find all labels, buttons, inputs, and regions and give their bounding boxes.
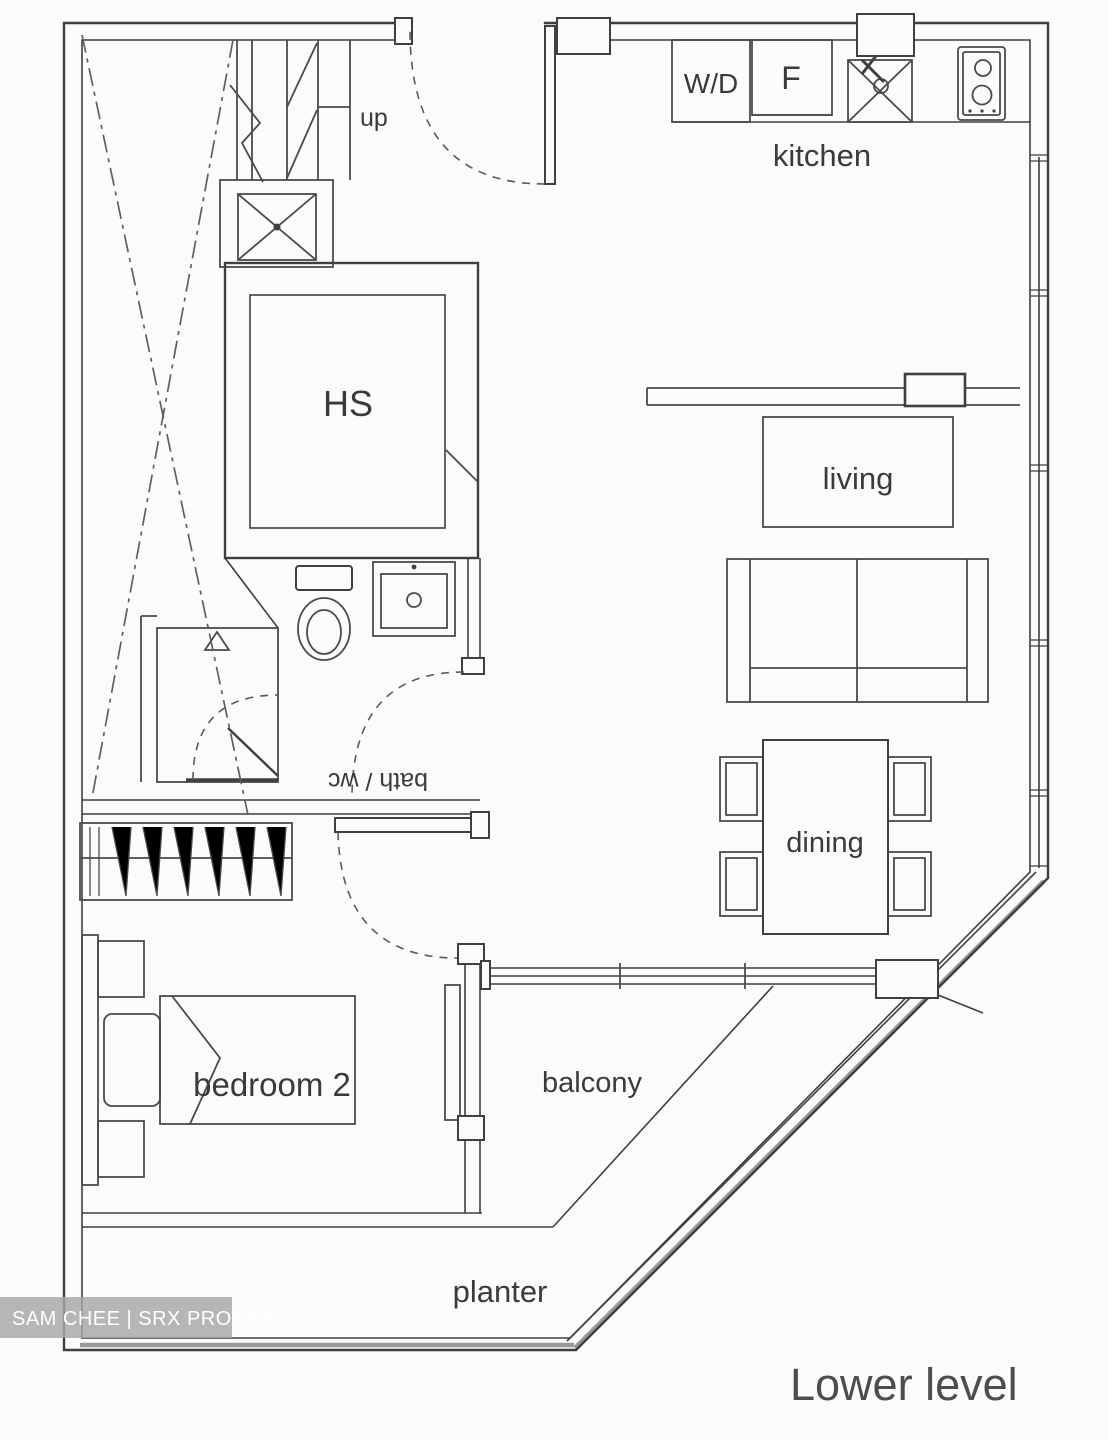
bedroom2-label: bedroom 2 xyxy=(193,1066,351,1103)
bedside-table xyxy=(98,1121,144,1177)
void-line xyxy=(92,40,233,798)
hob-knob xyxy=(980,109,983,112)
watermark-badge: SAM CHEE | SRX PROPERTY xyxy=(0,1297,301,1338)
sliding-door-jamb xyxy=(481,961,490,989)
hatch-line xyxy=(90,827,99,896)
exterior-walls xyxy=(64,14,1048,1350)
dining-chair xyxy=(720,852,763,916)
inner-wall-line xyxy=(82,40,1030,1338)
dining-chair xyxy=(720,757,763,821)
wall-service-box xyxy=(557,18,610,54)
basin-bowl xyxy=(381,574,447,628)
household-shelter: HS xyxy=(225,263,478,558)
sofa-cushion-lines xyxy=(750,559,967,702)
plan-title: Lower level xyxy=(790,1359,1018,1410)
bedroom-door-leaf xyxy=(335,818,475,832)
watermark-text: SAM CHEE | SRX PROPERTY xyxy=(12,1308,301,1330)
wall-block xyxy=(458,1116,484,1140)
dining-label: dining xyxy=(786,827,863,859)
floor-plan-page: up HS xyxy=(0,0,1108,1440)
bedroom-door xyxy=(335,812,489,958)
tv-unit-box xyxy=(905,374,965,406)
outer-wall-line xyxy=(64,23,1048,1350)
blanket-fold xyxy=(172,996,220,1124)
stairs-up-label: up xyxy=(360,104,388,132)
bedroom-door-arc xyxy=(338,832,466,958)
entrance-door-swing-arc xyxy=(410,30,545,184)
shower-stall xyxy=(141,616,278,782)
entrance-door-leaf xyxy=(545,26,555,184)
planter-label: planter xyxy=(453,1274,548,1309)
bedroom-right-wall xyxy=(465,950,480,1213)
kitchen: W/D F kitchen xyxy=(672,40,1030,173)
vanity-counter xyxy=(373,562,455,636)
planter: planter xyxy=(453,1274,548,1309)
bed-outline xyxy=(160,996,355,1124)
toilet-icon xyxy=(296,566,352,660)
chair-seat xyxy=(726,858,757,910)
shower-door-leaf xyxy=(228,728,278,776)
void-lines xyxy=(82,35,248,815)
hob-icon xyxy=(958,47,1005,120)
dining-chair xyxy=(888,852,931,916)
bedroom-2: bedroom 2 xyxy=(80,812,489,1227)
shower-door-arc xyxy=(193,695,278,780)
dining-chair xyxy=(888,757,931,821)
chair-seat xyxy=(726,763,757,815)
hatch-line xyxy=(236,827,255,896)
shelter-label: HS xyxy=(323,383,373,424)
hatch-line xyxy=(112,827,131,896)
balcony-label: balcony xyxy=(542,1067,642,1099)
bath-label: bath / wc xyxy=(328,767,428,795)
sofa-icon xyxy=(727,559,988,702)
shower-triangle-icon xyxy=(205,632,229,650)
bedroom-bottom-wall xyxy=(82,1213,482,1227)
living-room: living xyxy=(647,374,1020,702)
fridge-label: F xyxy=(781,60,801,96)
toilet-bowl xyxy=(298,598,350,660)
bed-headboard xyxy=(82,935,98,1185)
hob-inner xyxy=(963,52,1000,115)
stair-treads xyxy=(237,40,350,180)
wardrobe-hatch xyxy=(90,827,286,896)
kitchen-label: kitchen xyxy=(773,138,871,173)
hatch-line xyxy=(143,827,162,896)
hatch-line xyxy=(205,827,224,896)
living-label: living xyxy=(823,461,894,496)
lift-center-dot xyxy=(274,224,281,231)
washer-dryer-label: W/D xyxy=(684,68,738,99)
floor-plan-drawing: up HS xyxy=(0,0,1108,1440)
entrance-door xyxy=(410,26,555,184)
hatch-line xyxy=(267,827,286,896)
pillow xyxy=(104,1014,160,1106)
hob-burner xyxy=(975,60,991,76)
bedroom-window xyxy=(445,985,460,1120)
basin-tap-dot xyxy=(412,565,417,570)
chair-seat xyxy=(894,763,925,815)
shower-wall-line xyxy=(141,616,157,782)
void-line xyxy=(82,35,248,815)
wardrobe-icon xyxy=(80,823,292,900)
bathroom: bath / wc xyxy=(82,558,484,814)
sink-icon xyxy=(848,56,912,122)
hob-body xyxy=(958,47,1005,120)
bedroom-door-hinge-block xyxy=(471,812,489,838)
bedside-table xyxy=(98,941,144,997)
sliding-door-track xyxy=(487,968,876,984)
stair-break-line xyxy=(230,85,263,182)
basin-drain xyxy=(407,593,421,607)
chamfer-glazing xyxy=(567,872,1036,1341)
corridor-wall xyxy=(82,800,480,814)
hob-burner xyxy=(973,86,992,105)
toilet-bowl-inner xyxy=(307,610,341,654)
lift-shaft xyxy=(220,180,333,267)
shelter-door-leaf xyxy=(446,450,478,482)
bath-door-jamb xyxy=(462,658,484,674)
chair-seat xyxy=(894,858,925,910)
sink-cross-lines xyxy=(848,60,912,122)
wall-service-box xyxy=(857,14,914,56)
door-jamb-block xyxy=(395,18,412,44)
hob-knob xyxy=(968,109,971,112)
balcony-door-post xyxy=(876,960,938,998)
bed-icon xyxy=(82,935,355,1185)
hatch-line xyxy=(174,827,193,896)
hob-knob xyxy=(992,109,995,112)
stairs: up xyxy=(230,40,388,182)
stair-flight-lines xyxy=(287,43,317,178)
toilet-cistern xyxy=(296,566,352,590)
splayed-wall xyxy=(225,558,278,628)
basin-icon xyxy=(373,562,455,636)
dining-area: dining xyxy=(720,740,931,934)
bath-wall xyxy=(468,558,480,672)
